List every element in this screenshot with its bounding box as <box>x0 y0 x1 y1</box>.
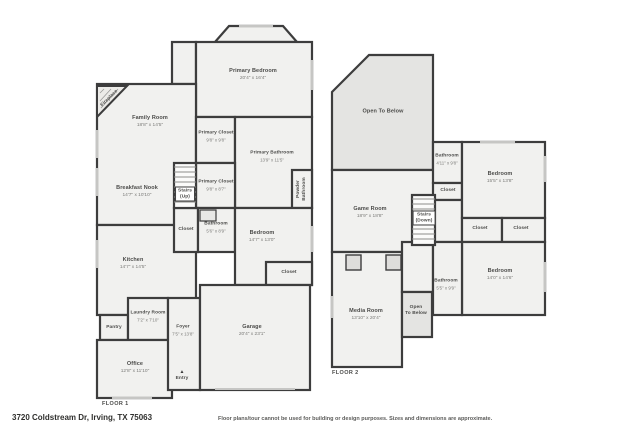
room-label: Closet <box>513 226 528 232</box>
room-dims: 15'5" x 13'8" <box>487 179 513 185</box>
room-name: Bathroom <box>434 279 457 285</box>
room-label: Laundry Room7'2" x 7'10" <box>130 311 165 324</box>
room-name: Office <box>121 361 150 368</box>
room-dims: 18'9" x 18'8" <box>353 214 386 220</box>
room-label: ▲Entry <box>176 370 189 382</box>
room-dims: 20'4" x 23'1" <box>239 332 265 338</box>
room-dims: 4'11" x 9'8" <box>435 161 458 167</box>
floorplan-canvas: Primary Bedroom20'4" x 16'4"Family Room1… <box>0 0 640 426</box>
room-dims: 9'8" x 9'8" <box>198 138 233 144</box>
room-label: Bathroom5'6" x 8'9" <box>204 222 227 235</box>
room-dims: 12'8" x 11'10" <box>121 369 150 375</box>
room-name: Bathroom <box>435 154 458 160</box>
room-label: Media Room13'10" x 20'4" <box>349 308 383 322</box>
room-name: Open To Below <box>363 108 404 115</box>
room-label: Closet <box>440 188 455 194</box>
room-name: Primary Bedroom <box>229 68 277 75</box>
room-name: Bedroom <box>487 171 513 178</box>
room-label: Office12'8" x 11'10" <box>121 361 150 375</box>
room-label: Closet <box>178 227 193 233</box>
room-dims: 18'8" x 14'5" <box>132 123 168 129</box>
room-dims: 20'4" x 16'4" <box>229 76 277 82</box>
room-label: Stairs (Up) <box>175 186 195 201</box>
room-name: Bathroom <box>204 222 227 228</box>
room-label: Primary Closet9'8" x 9'8" <box>198 131 233 144</box>
room-label: Bathroom5'5" x 9'9" <box>434 279 457 292</box>
room-label: Foyer7'5" x 13'8" <box>172 325 194 338</box>
room-name: Closet <box>513 226 528 232</box>
room-name: Stairs (Up) <box>178 188 192 199</box>
room-label: Game Room18'9" x 18'8" <box>353 206 386 220</box>
room-label: Bathroom4'11" x 9'8" <box>435 154 458 167</box>
room-label: Primary Bathroom13'9" x 11'5" <box>250 151 293 164</box>
room-dims: 14'7" x 10'10" <box>116 193 158 199</box>
room-name: Primary Closet <box>198 131 233 137</box>
room-dims: 13'9" x 11'5" <box>250 158 293 164</box>
floor2-tag: FLOOR 2 <box>332 370 359 376</box>
room-name: Bedroom <box>249 230 275 237</box>
room-name: Entry <box>176 376 189 382</box>
room-name: Laundry Room <box>130 311 165 317</box>
room-dims: 7'5" x 13'8" <box>172 332 194 338</box>
room-dims: 13'10" x 20'4" <box>349 316 383 322</box>
room-label: Family Room18'8" x 14'5" <box>132 115 168 129</box>
room-dims: 5'6" x 8'9" <box>204 229 227 235</box>
room-label: Closet <box>472 226 487 232</box>
room-label: Bedroom14'0" x 14'6" <box>487 268 513 282</box>
room-name: Primary Closet <box>198 180 233 186</box>
disclaimer-text: Floor plans/tour cannot be used for buil… <box>218 416 492 422</box>
room-name: Closet <box>472 226 487 232</box>
room-name: Media Room <box>349 308 383 315</box>
room-name: Closet <box>178 227 193 233</box>
room-label: Closet <box>281 270 296 276</box>
room-dims: 7'2" x 7'10" <box>130 318 165 324</box>
room-name: Family Room <box>132 115 168 122</box>
room-label: Open To Below <box>363 108 404 115</box>
entry-arrow-icon: ▲ <box>176 370 189 375</box>
room-name: Game Room <box>353 206 386 213</box>
property-address: 3720 Coldstream Dr, Irving, TX 75063 <box>12 413 152 422</box>
room-name: Foyer <box>172 325 194 331</box>
room-name: Breakfast Nook <box>116 185 158 192</box>
room-label: Bedroom14'7" x 13'0" <box>249 230 275 244</box>
room-dims: 14'7" x 13'0" <box>249 238 275 244</box>
room-dims: 14'0" x 14'6" <box>487 276 513 282</box>
room-name: Kitchen <box>120 257 146 264</box>
room-name: Powder Bathroom <box>296 177 308 200</box>
room-label: Fireplace <box>100 89 120 109</box>
room-label: Powder Bathroom <box>296 177 308 200</box>
room-name: Open To Below <box>405 305 427 317</box>
room-dims: 9'8" x 8'7" <box>198 187 233 193</box>
room-name: Stairs (Down) <box>416 212 433 223</box>
room-name: Pantry <box>106 325 122 331</box>
room-name: Closet <box>440 188 455 194</box>
room-label: Stairs (Down) <box>413 210 436 225</box>
room-name: Primary Bathroom <box>250 151 293 157</box>
room-name: Garage <box>239 324 265 331</box>
room-dims: 5'5" x 9'9" <box>434 286 457 292</box>
room-label: Pantry <box>106 325 122 331</box>
room-label: Bedroom15'5" x 13'8" <box>487 171 513 185</box>
room-name: Closet <box>281 270 296 276</box>
room-dims: 14'7" x 14'5" <box>120 265 146 271</box>
room-label: Primary Bedroom20'4" x 16'4" <box>229 68 277 82</box>
floor1-tag: FLOOR 1 <box>102 401 129 407</box>
room-name: Fireplace <box>100 89 120 109</box>
room-labels-layer: Primary Bedroom20'4" x 16'4"Family Room1… <box>0 0 640 426</box>
room-label: Breakfast Nook14'7" x 10'10" <box>116 185 158 199</box>
room-label: Open To Below <box>405 305 427 317</box>
room-label: Garage20'4" x 23'1" <box>239 324 265 338</box>
room-label: Primary Closet9'8" x 8'7" <box>198 180 233 193</box>
room-name: Bedroom <box>487 268 513 275</box>
room-label: Kitchen14'7" x 14'5" <box>120 257 146 271</box>
